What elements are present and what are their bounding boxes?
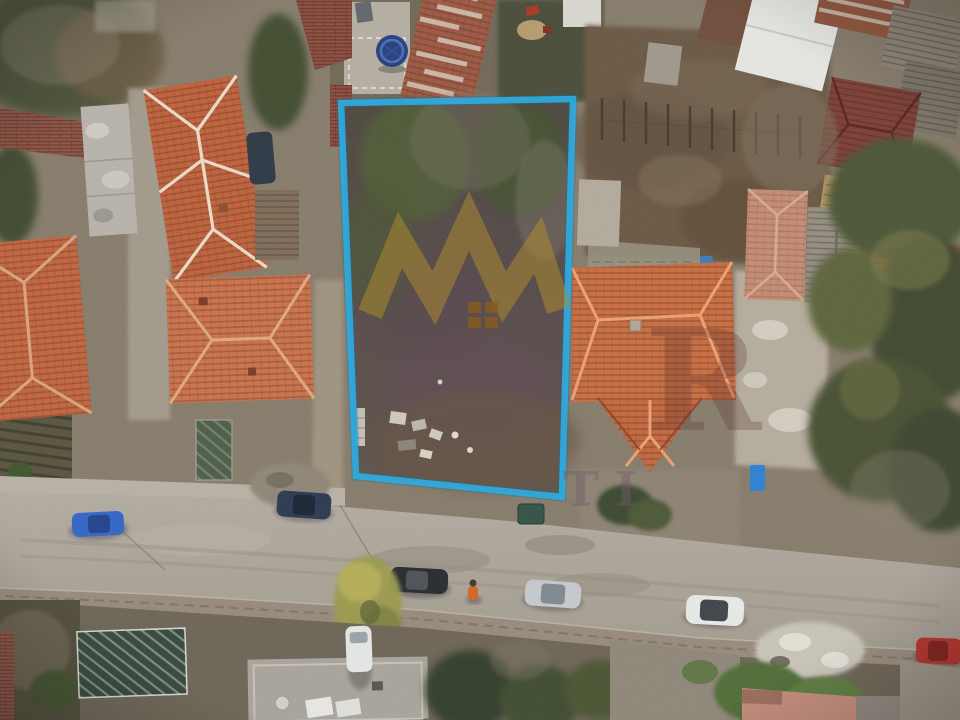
aerial-photo: R TI [0, 0, 960, 720]
watermark-letters-small: TI [563, 462, 653, 518]
vignette [0, 0, 960, 720]
watermark-letter-large: R [645, 300, 763, 464]
